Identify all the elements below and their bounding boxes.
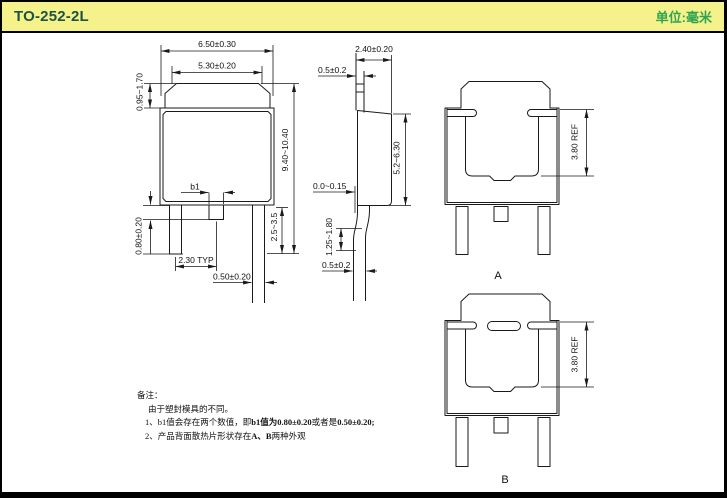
notes-item-1: 1、b1值会存在两个数值，即b1值为0.80±0.20或者是0.50±0.20;	[137, 416, 374, 430]
frame-bottom	[0, 492, 727, 498]
side-view: 2.40±0.20 0.5±0.2 5.2~6.30 0.0~0.15 1.25…	[313, 44, 411, 301]
dim-lead-thickness: 0.5±0.2	[322, 260, 351, 270]
frame-left	[0, 0, 2, 498]
datasheet-page: 6.50±0.30 5.30±0.20 0.95~1.70 9.40~10.40…	[0, 0, 727, 498]
dim-pad-height-b: 3.80 REF	[570, 337, 580, 373]
tab-side	[356, 53, 364, 113]
dim-tab-height: 0.95~1.70	[135, 73, 145, 111]
dim-center-lead-length: 0.80±0.20	[134, 217, 144, 255]
variant-a-label: A	[494, 270, 502, 282]
dim-b1-label: b1	[190, 182, 200, 192]
dim-body-height: 5.2~6.30	[392, 141, 402, 175]
dim-lead-pitch: 2.30 TYP	[178, 255, 214, 265]
body-front	[160, 108, 274, 205]
notes-heading: 备注：	[137, 389, 374, 403]
lead-right	[253, 205, 265, 303]
rear-view-b: 3.80 REF B	[445, 294, 594, 486]
lead-side	[354, 206, 370, 302]
mold-tab-front	[165, 84, 270, 109]
dim-tab-width: 5.30±0.20	[198, 61, 236, 71]
dim-pad-height-a: 3.80 REF	[570, 124, 580, 160]
lead-center-stub	[209, 205, 224, 220]
unit-label: 单位:毫米	[656, 7, 712, 26]
notes-block: 备注： 由于塑封模具的不同。 1、b1值会存在两个数值，即b1值为0.80±0.…	[137, 389, 374, 443]
dim-lead-length: 2.5~3.5	[269, 212, 279, 241]
dim-lead-width: 0.50±0.20	[213, 272, 251, 282]
dim-body-thickness: 2.40±0.20	[355, 44, 393, 54]
body-side	[358, 111, 392, 206]
frame-top	[0, 0, 727, 2]
notes-intro: 由于塑封模具的不同。	[137, 403, 374, 417]
dim-lead-bend-height: 1.25~1.80	[324, 218, 334, 256]
variant-b-label: B	[501, 474, 508, 486]
body-rear-a	[445, 82, 559, 205]
dim-tab-thickness: 0.5±0.2	[318, 65, 347, 75]
lead-left	[170, 205, 182, 254]
dim-body-width-outer: 6.50±0.30	[198, 39, 236, 49]
page-title: TO-252-2L	[14, 8, 89, 25]
rear-view-a: 3.80 REF A	[445, 82, 594, 283]
body-rear-b	[445, 294, 559, 416]
title-bar: TO-252-2L 单位:毫米	[2, 2, 724, 33]
notes-item-2: 2、产品背面散热片形状存在A、B两种外观	[137, 430, 374, 444]
front-view: 6.50±0.30 5.30±0.20 0.95~1.70 9.40~10.40…	[134, 39, 300, 303]
dim-standoff: 0.0~0.15	[313, 181, 347, 191]
dim-total-height: 9.40~10.40	[280, 128, 290, 171]
